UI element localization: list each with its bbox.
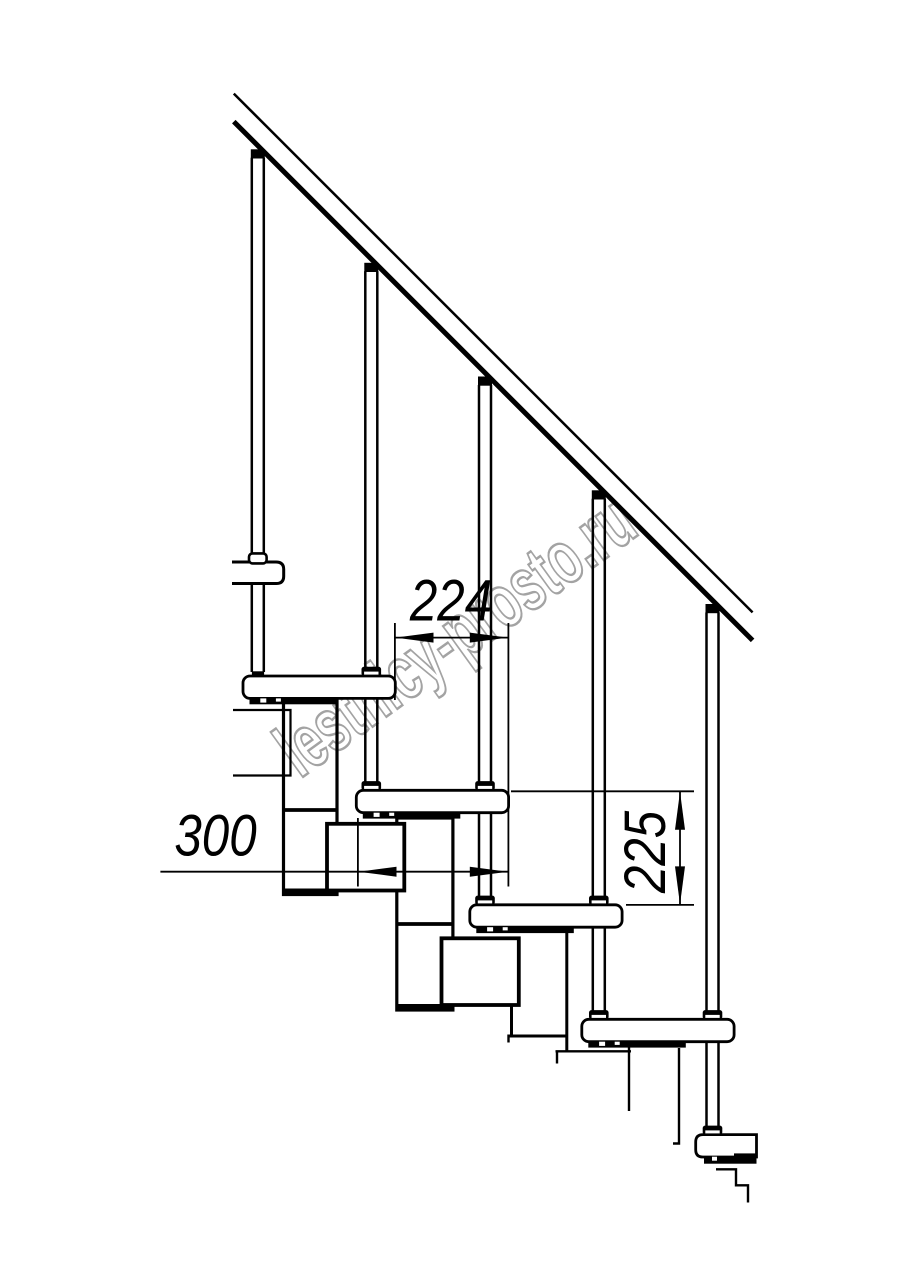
svg-text:225: 225	[613, 810, 678, 894]
svg-text:224: 224	[409, 569, 492, 634]
svg-text:300: 300	[174, 804, 256, 869]
